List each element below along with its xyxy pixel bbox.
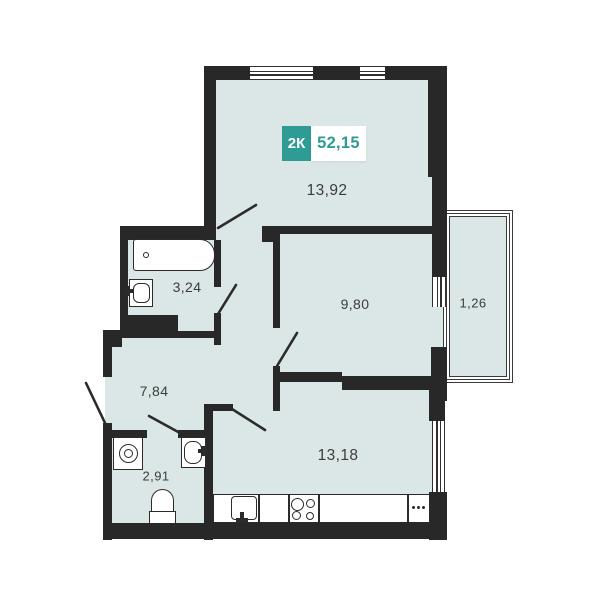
corridor-area: [214, 230, 278, 346]
living-room-label: 13,92: [307, 182, 348, 200]
counter-dots-icon: [412, 506, 415, 509]
wc-label: 2,91: [143, 469, 170, 484]
window-icon: [250, 66, 313, 80]
wall-kitchen-right-up: [429, 390, 445, 421]
rooms-badge: 2К: [282, 126, 311, 161]
wall-kitchen-door-top: [204, 404, 233, 411]
window-icon: [432, 277, 446, 307]
counter-divider: [288, 495, 290, 522]
bathroom-label: 3,24: [173, 279, 202, 295]
stove-icon: [291, 498, 304, 511]
wall-wc-kitchen: [204, 404, 213, 540]
counter-divider: [258, 495, 260, 522]
window-icon: [432, 421, 445, 492]
wall-kitchen-left-stub: [273, 366, 280, 411]
bath-sink-bowl-icon: [133, 283, 150, 303]
wc-faucet-icon: [201, 446, 205, 456]
wall-top: [204, 66, 447, 80]
wall-bottom: [103, 523, 447, 539]
hallway-label: 7,84: [140, 383, 169, 399]
wall-living-left: [204, 66, 216, 230]
wall-bathroom-right-up: [214, 240, 221, 287]
balcony-label: 1,26: [460, 296, 487, 311]
wall-right-upper: [428, 66, 447, 177]
bedroom-label: 9,80: [341, 296, 370, 312]
counter-divider: [318, 495, 320, 522]
wall-bedroom-left: [273, 234, 280, 328]
door-swing-icon: [86, 383, 105, 423]
counter-dots-icon: [417, 506, 420, 509]
kitchen-faucet-icon: [236, 518, 248, 522]
wall-bedroom-bottom-thin: [280, 372, 342, 382]
wall-hall-left-upper: [103, 344, 112, 377]
wall-bathroom-top: [120, 226, 216, 240]
toilet-tank-icon: [149, 511, 176, 524]
bathtub-drain-icon: [143, 252, 149, 258]
wall-bedroom-top: [262, 226, 447, 234]
wall-bathroom-bottom-thin: [178, 331, 221, 338]
floor-plan[interactable]: 2К 52,15 13,92 3,24 9,80 1,26 7,84 2,91 …: [0, 0, 600, 600]
bath-faucet-icon: [126, 286, 130, 296]
kitchen-sink-icon: [231, 496, 257, 520]
stove-icon: [306, 499, 315, 508]
counter-dots-icon: [422, 506, 425, 509]
wall-bathroom-left: [120, 240, 128, 320]
washing-machine-drum-icon: [124, 449, 133, 458]
total-area-badge: 52,15: [311, 126, 366, 161]
kitchen-label: 13,18: [318, 447, 359, 465]
wall-bathroom-bottom: [120, 315, 178, 338]
counter-divider: [407, 495, 409, 522]
window-icon: [360, 66, 385, 80]
stove-icon: [292, 511, 301, 520]
wall-bathroom-right-low: [214, 313, 221, 345]
stove-icon: [306, 512, 314, 520]
